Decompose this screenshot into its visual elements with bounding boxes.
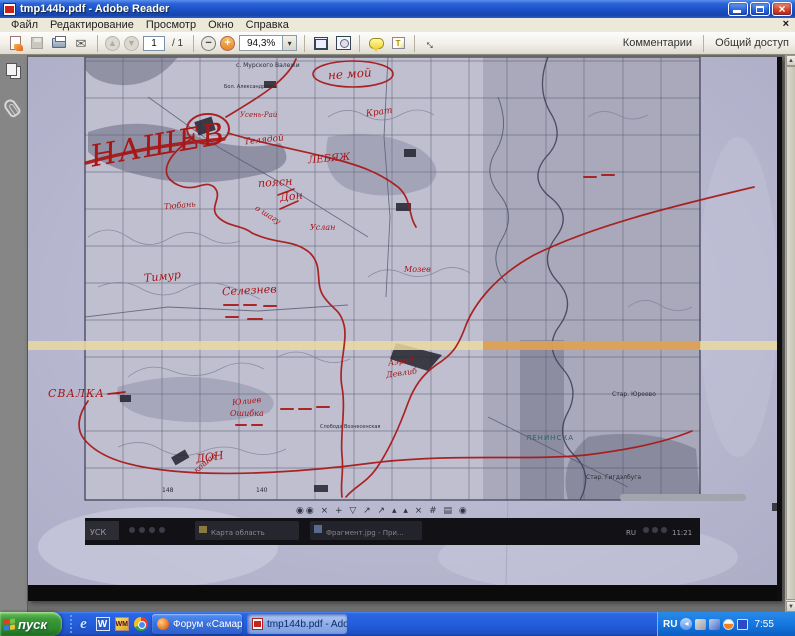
taskbar: пуск e W WM » Форум «Самарского ... tmp1… — [0, 612, 795, 636]
fit-page-button[interactable] — [334, 35, 352, 52]
menu-edit[interactable]: Редактирование — [44, 19, 140, 31]
language-indicator[interactable]: RU — [663, 619, 677, 630]
label-leninska: ЛЕНИНСКА — [526, 434, 574, 442]
embedded-tray-clock: 11:21 — [672, 529, 692, 537]
zoom-out-button[interactable]: − — [201, 36, 216, 51]
label-height-140: 140 — [256, 487, 268, 494]
embedded-tray-language: RU — [626, 529, 636, 537]
label-murskogo: с. Мурского Валежи — [236, 62, 300, 69]
chrome-icon[interactable] — [133, 617, 148, 632]
comments-panel-button[interactable]: Комментарии — [623, 37, 692, 49]
label-aleksandrovka: Бол. Александровка — [224, 84, 277, 90]
annotation-poyasn: поясн — [258, 175, 293, 190]
page-thumbnails-icon[interactable] — [6, 63, 22, 81]
webmoney-icon[interactable]: WM — [114, 617, 129, 632]
email-button[interactable]: ✉ — [72, 35, 90, 52]
fullscreen-icon: ↔ — [422, 34, 440, 52]
map-scan: НАШЕВ не мой Усень-Рай Телядой Крат ЛЕБЯ… — [28, 57, 782, 601]
menu-view[interactable]: Просмотр — [140, 19, 202, 31]
restore-button[interactable] — [750, 2, 770, 16]
scroll-down-icon[interactable]: ▼ — [786, 601, 795, 612]
embedded-taskbar-button-2: Фрагмент.jpg - При... — [326, 529, 404, 537]
windows-logo-icon — [4, 618, 15, 630]
scan-bottom-edge — [28, 585, 782, 601]
system-tray: RU ◂ 7:55 — [657, 612, 795, 636]
annotation-usen-ray: Усень-Рай — [240, 111, 278, 119]
annotation-don-small: Дон — [278, 189, 303, 204]
menu-file[interactable]: Файл — [5, 19, 44, 31]
taskbar-button-forum[interactable]: Форум «Самарского ... — [152, 614, 242, 634]
comment-bubble-icon — [369, 38, 384, 49]
zoom-dropdown-icon[interactable]: ▾ — [283, 35, 297, 51]
clock[interactable]: 7:55 — [754, 619, 773, 630]
browser-icon — [157, 618, 169, 630]
email-icon: ✉ — [76, 37, 87, 50]
start-button[interactable]: пуск — [0, 612, 62, 636]
page-number-input[interactable]: 1 — [143, 36, 165, 51]
annotation-svalka: СВАЛКА — — [48, 387, 121, 400]
fit-page-icon — [336, 36, 351, 50]
toolbar: ✉ ▲ ▼ 1 / 1 − + 94,3% ▾ T ↔ Комментарии … — [0, 32, 795, 55]
zoom-level-value[interactable]: 94,3% — [239, 35, 283, 51]
document-pane: НАШЕВ не мой Усень-Рай Телядой Крат ЛЕБЯ… — [0, 55, 795, 612]
word-icon[interactable]: W — [95, 617, 110, 632]
annotation-uslan: Услан — [310, 223, 335, 232]
attachments-paperclip-icon[interactable] — [2, 97, 22, 119]
open-icon — [10, 36, 21, 50]
embedded-taskbar-button-1: Карта область — [211, 529, 265, 537]
fullscreen-button[interactable]: ↔ — [422, 35, 440, 52]
menu-help[interactable]: Справка — [240, 19, 295, 31]
previous-page-button[interactable]: ▲ — [105, 36, 120, 51]
internet-explorer-icon[interactable]: e — [76, 617, 91, 632]
menu-window[interactable]: Окно — [202, 19, 240, 31]
window-title: tmp144b.pdf - Adobe Reader — [20, 3, 169, 15]
share-panel-button[interactable]: Общий доступ — [715, 37, 789, 49]
minimize-button[interactable] — [728, 2, 748, 16]
start-button-label: пуск — [18, 617, 47, 632]
label-star-gigdelbuga: Стар. Гигдэлбуга — [586, 474, 641, 481]
scan-right-edge — [777, 57, 782, 601]
page-count-label: / 1 — [169, 38, 186, 49]
sticky-note-icon: T — [392, 37, 405, 49]
open-button[interactable] — [6, 35, 24, 52]
scrolling-mode-icon — [314, 37, 328, 50]
vertical-scrollbar[interactable]: ▲ ▼ — [785, 55, 795, 612]
adobe-pdf-icon — [3, 3, 16, 16]
label-star-yureevo: Стар. Юреево — [612, 391, 656, 398]
scrolling-mode-button[interactable] — [312, 35, 330, 52]
zoom-level-combo[interactable]: 94,3% ▾ — [239, 35, 297, 51]
navigation-panel — [0, 55, 28, 612]
annotation-mozev: Мозев — [403, 265, 431, 274]
annotation-oshibka: Ошибка — [230, 409, 264, 418]
sticky-note-button[interactable]: T — [389, 35, 407, 52]
tray-app-icon[interactable] — [709, 619, 720, 630]
document-close-icon[interactable]: × — [783, 18, 789, 30]
taskbar-button-adobe[interactable]: tmp144b.pdf - Adobe... — [247, 614, 347, 634]
save-button[interactable] — [28, 35, 46, 52]
comment-bubble-button[interactable] — [367, 35, 385, 52]
map-artwork: НАШЕВ не мой Усень-Рай Телядой Крат ЛЕБЯ… — [28, 57, 778, 500]
label-sloboda: Слобода Вознесенская — [320, 424, 380, 430]
menubar: Файл Редактирование Просмотр Окно Справк… — [0, 18, 795, 32]
embedded-viewer-toolbar-icons: ◉◉ × + ▽ ↗ ↗ ▴ ▴ × # ▤ ◉ — [296, 506, 469, 516]
window-titlebar: tmp144b.pdf - Adobe Reader × — [0, 0, 795, 18]
pdf-page[interactable]: НАШЕВ не мой Усень-Рай Телядой Крат ЛЕБЯ… — [28, 57, 782, 601]
tray-display-icon[interactable] — [737, 619, 748, 630]
label-height-148: 148 — [162, 487, 174, 494]
hide-icons-chevron[interactable]: ◂ — [680, 618, 692, 630]
print-button[interactable] — [50, 35, 68, 52]
tray-antivirus-icon[interactable] — [723, 619, 734, 630]
scroll-up-icon[interactable]: ▲ — [786, 55, 795, 66]
close-button[interactable]: × — [772, 2, 792, 16]
quick-launch: e W WM » — [66, 612, 161, 636]
scrollbar-thumb[interactable] — [786, 66, 795, 600]
save-icon — [31, 37, 43, 49]
embedded-start-button: УСК — [90, 528, 106, 537]
tray-utility-icon[interactable] — [695, 619, 706, 630]
zoom-in-button[interactable]: + — [220, 36, 235, 51]
pdf-file-icon — [252, 618, 263, 630]
print-icon — [52, 38, 66, 48]
next-page-button[interactable]: ▼ — [124, 36, 139, 51]
desktop: tmp144b.pdf - Adobe Reader × Файл Редакт… — [0, 0, 795, 636]
